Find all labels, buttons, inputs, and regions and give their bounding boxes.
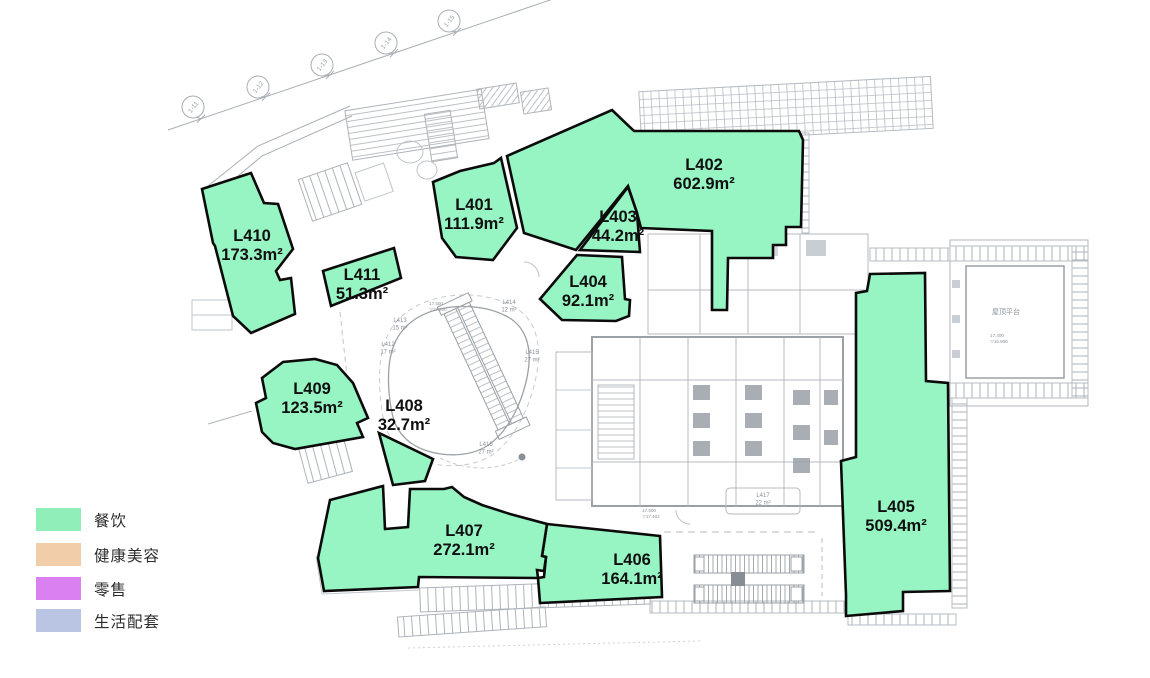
legend-label-dining: 餐饮 — [94, 509, 127, 531]
unit-L401: L401111.9m² — [433, 158, 517, 260]
minor-unit-L412-area: 17 m² — [380, 350, 395, 356]
unit-L411: L41151.3m² — [323, 248, 401, 306]
legend-swatch-retail — [36, 577, 81, 600]
unit-L405: L405509.4m² — [841, 273, 950, 616]
grid-bubble-1-15: 1-15 — [438, 10, 461, 36]
minor-unit-L414-id: L414 — [502, 300, 516, 306]
legend-swatch-health-beauty — [36, 543, 81, 566]
floorplan-drawing: L401111.9m²L402602.9m²L40344.2m²L40492.1… — [0, 0, 1150, 678]
unit-L404-area-label: 92.1m² — [562, 292, 615, 310]
unit-L408: L40832.7m² — [378, 397, 433, 485]
legend-swatch-life-services — [36, 609, 81, 632]
minor-unit-L416-area: 27 m² — [478, 450, 493, 456]
minor-unit-L413-id: L413 — [393, 318, 407, 324]
unit-L405-id-label: L405 — [877, 498, 915, 516]
minor-unit-L414: L41412 m² — [501, 300, 516, 314]
unit-L405-region — [841, 273, 950, 616]
minor-unit-L416: L41627 m² — [478, 442, 493, 456]
tree-icon — [417, 161, 437, 179]
unit-L408-id-label: L408 — [385, 397, 423, 415]
plan-annotation-6: ▽16.900 — [990, 339, 1008, 344]
unit-L409: L409123.5m² — [256, 359, 368, 449]
minor-unit-L417-area: 22 m² — [755, 501, 770, 507]
unit-L402-region — [507, 110, 803, 310]
grid-tick — [197, 115, 205, 123]
unit-L401-id-label: L401 — [455, 196, 493, 214]
unit-L401-area-label: 111.9m² — [444, 215, 504, 233]
unit-L402: L402602.9m² — [507, 110, 803, 310]
escalator-icon — [437, 293, 530, 440]
unit-L409-id-label: L409 — [293, 380, 331, 398]
grid-bubble-1-11: 1-11 — [182, 96, 205, 123]
unit-L408-region — [379, 433, 433, 485]
plan-annotation-0: 屋顶平台 — [992, 307, 1020, 316]
legend-label-life-services: 生活配套 — [94, 610, 160, 632]
unit-L410-id-label: L410 — [233, 227, 271, 245]
unit-L406-area-label: 164.1m² — [601, 570, 663, 588]
unit-L407-area-label: 272.1m² — [433, 541, 495, 559]
minor-unit-L415-id: L415 — [525, 350, 539, 356]
unit-L403-id-label: L403 — [599, 208, 637, 226]
unit-L402-area-label: 602.9m² — [673, 175, 735, 193]
grid-bubble-label: 1-11 — [187, 100, 200, 114]
legend-item-dining: 餐饮 — [36, 508, 127, 531]
minor-unit-L416-id: L416 — [479, 442, 493, 448]
legend-item-life-services: 生活配套 — [36, 609, 160, 632]
grid-bubble-label: 1-13 — [316, 58, 330, 73]
unit-L404: L40492.1m² — [540, 255, 630, 321]
unit-L410: L410173.3m² — [202, 173, 295, 333]
unit-L402-id-label: L402 — [685, 156, 723, 174]
unit-L407-region — [318, 486, 547, 591]
unit-L411-id-label: L411 — [344, 266, 381, 284]
unit-L406-id-label: L406 — [613, 551, 651, 569]
roof-terrace — [950, 240, 1088, 406]
plan-annotation-4: ▽17.402 — [642, 514, 660, 519]
plan-annotation-1: 17.500 — [429, 301, 443, 306]
plan-annotation-2: ▽17.400 — [429, 307, 447, 312]
minor-unit-L415: L41527 m² — [524, 350, 539, 364]
legend-label-health-beauty: 健康美容 — [94, 544, 160, 566]
unit-L406: L406164.1m² — [538, 524, 663, 603]
minor-unit-L412-id: L412 — [381, 342, 395, 348]
legend-item-retail: 零售 — [36, 577, 127, 600]
minor-unit-L415-area: 27 m² — [524, 358, 539, 364]
legend-item-health-beauty: 健康美容 — [36, 543, 160, 566]
unit-L404-id-label: L404 — [569, 273, 607, 291]
minor-unit-L417: L41722 m² — [755, 493, 770, 507]
unit-L403-area-label: 44.2m² — [592, 227, 645, 245]
unit-L407-id-label: L407 — [445, 522, 483, 540]
grid-bubble-label: 1-14 — [380, 36, 394, 51]
unit-L405-area-label: 509.4m² — [865, 517, 927, 535]
grid-bubble-label: 1-15 — [443, 14, 457, 29]
minor-unit-L412: L41217 m² — [380, 342, 395, 356]
legend-label-retail: 零售 — [94, 578, 127, 600]
minor-unit-L417-id: L417 — [756, 493, 770, 499]
minor-unit-L413-area: 15 m² — [392, 326, 407, 332]
unit-L409-area-label: 123.5m² — [281, 399, 343, 417]
legend-swatch-dining — [36, 508, 81, 531]
minor-unit-L414-area: 12 m² — [501, 308, 516, 314]
floorplan-page: L401111.9m²L402602.9m²L40344.2m²L40492.1… — [0, 0, 1150, 678]
grid-bubble-label: 1-12 — [252, 80, 266, 95]
minor-unit-L413: L41315 m² — [392, 318, 407, 332]
unit-L407: L407272.1m² — [318, 486, 547, 591]
unit-L410-area-label: 173.3m² — [221, 246, 283, 264]
moving-walkway-icon — [694, 555, 804, 603]
unit-L411-area-label: 51.3m² — [336, 285, 389, 303]
unit-L408-area-label: 32.7m² — [378, 416, 431, 434]
plan-annotation-5: 17.400 — [990, 333, 1004, 338]
plan-annotation-3: 17.500 — [642, 508, 656, 513]
